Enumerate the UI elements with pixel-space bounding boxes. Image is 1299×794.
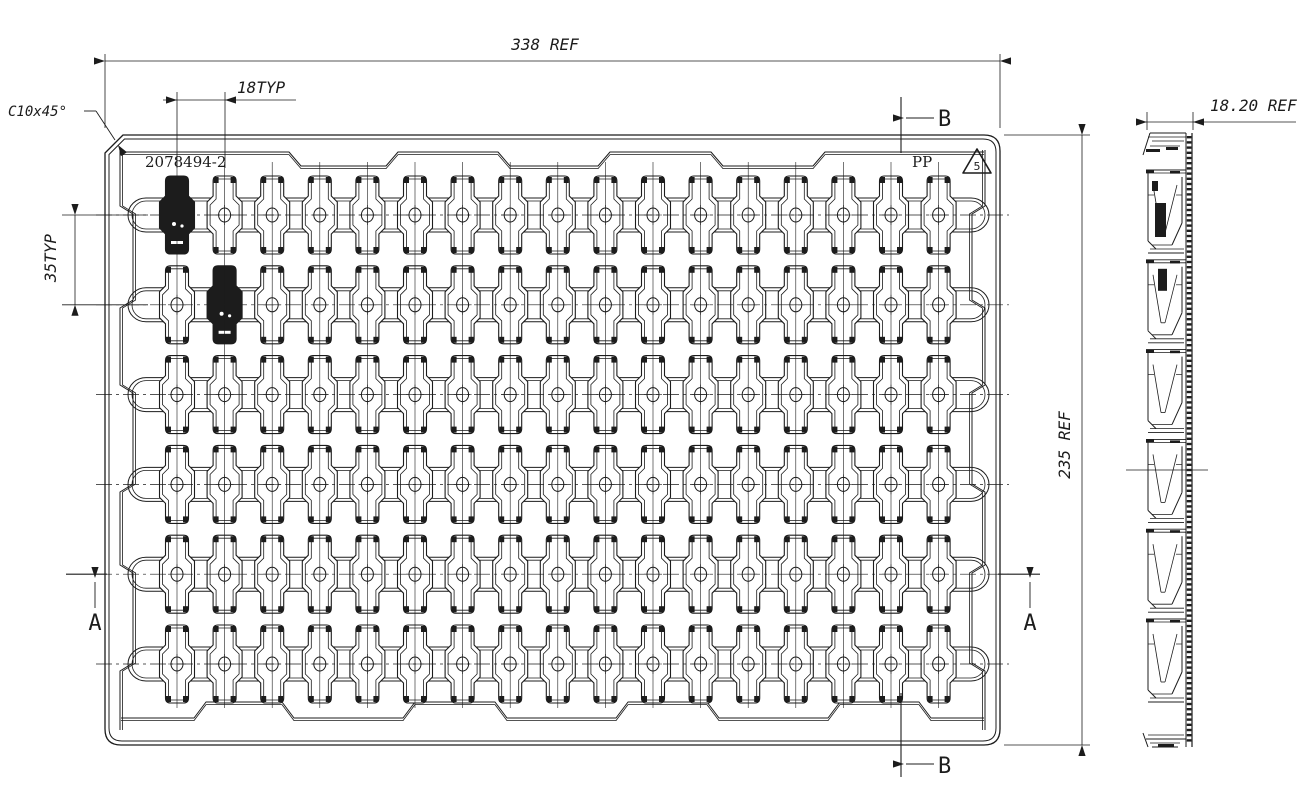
part-number: 2078494-2 [145, 153, 226, 171]
tray-side-view [1126, 133, 1208, 747]
section-label-b-bottom: B [938, 754, 951, 779]
dim-overall-height: 235 REF [1055, 411, 1074, 479]
dim-pitch-x: 18TYP [237, 78, 286, 97]
section-label-b-top: B [938, 107, 951, 132]
dim-pitch-y: 35TYP [41, 234, 60, 284]
dim-side-thickness: 18.20 REF [1210, 96, 1297, 115]
chamfer-note: C10x45° [8, 104, 67, 120]
section-label-a-right: A [1023, 611, 1036, 636]
section-label-a-left: A [88, 611, 101, 636]
dimension-lines [62, 54, 1296, 777]
material-marking: PP [912, 153, 932, 171]
resin-code: 5 [974, 160, 981, 173]
drawing-canvas: 338 REF 235 REF 18TYP 35TYP C10x45° 18.2… [0, 0, 1299, 794]
dim-overall-width: 338 REF [510, 35, 579, 54]
engineering-drawing: 338 REF 235 REF 18TYP 35TYP C10x45° 18.2… [0, 0, 1299, 794]
recycling-symbol-icon: 5 [963, 149, 991, 173]
